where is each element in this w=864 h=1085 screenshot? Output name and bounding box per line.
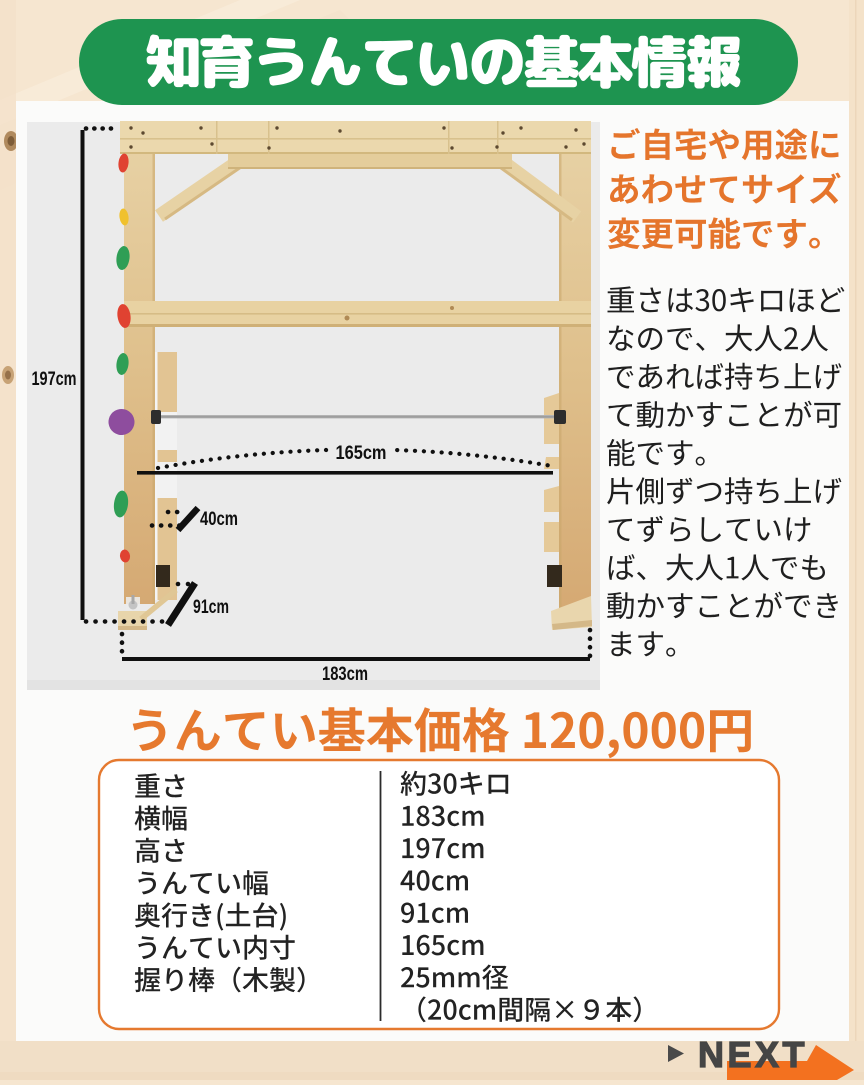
svg-text:197cm: 197cm xyxy=(32,368,77,390)
svg-text:165cm: 165cm xyxy=(336,443,387,464)
svg-text:40cm: 40cm xyxy=(200,508,238,530)
svg-text:NEXT: NEXT xyxy=(698,1034,808,1075)
svg-text:183cm: 183cm xyxy=(322,663,368,685)
svg-text:91cm: 91cm xyxy=(193,596,229,618)
